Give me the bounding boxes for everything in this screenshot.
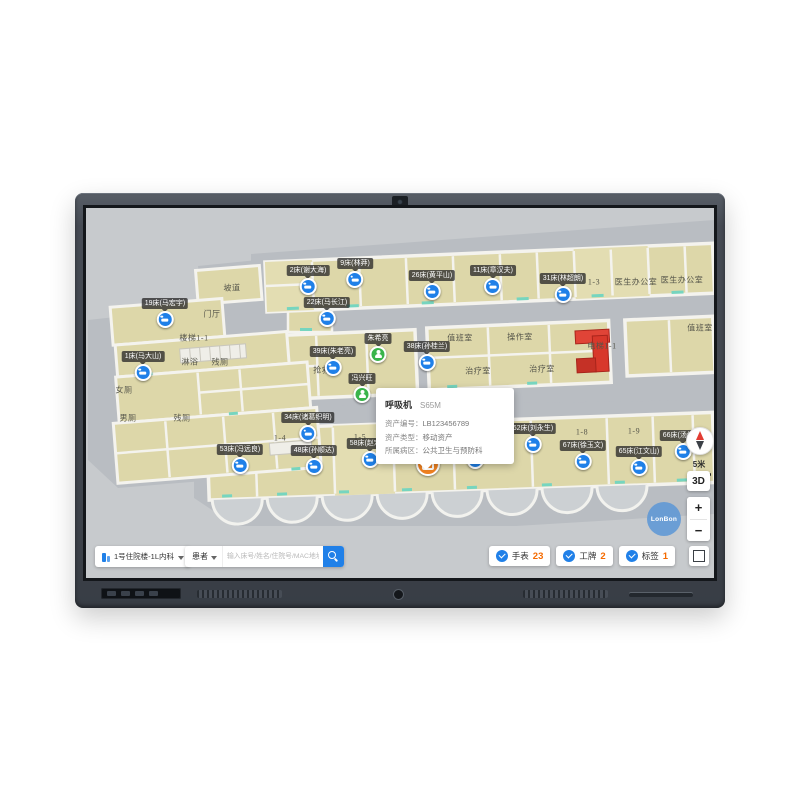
- person-pill-label: 冯兴旺: [349, 373, 376, 384]
- bed-pill-label: 19床(马宏宇): [142, 298, 188, 309]
- tooltip-row-value: LB123456789: [423, 419, 470, 428]
- bed-pill-label: 38床(孙桂兰): [404, 341, 450, 352]
- fullscreen-button[interactable]: [689, 546, 709, 566]
- bed-icon: [524, 436, 541, 453]
- search-button[interactable]: [323, 546, 344, 567]
- building-icon: [101, 552, 111, 562]
- map-scale-label: 5米: [693, 460, 705, 469]
- room-label: 淋浴: [182, 357, 199, 368]
- building-selector[interactable]: 1号住院楼-1L内科: [95, 546, 190, 567]
- bed-icon: [156, 311, 173, 328]
- bed-marker[interactable]: 11床(章汉夫): [470, 265, 516, 295]
- room-label: 操作室: [507, 332, 533, 343]
- bed-icon: [135, 364, 152, 381]
- counter-count: 1: [663, 551, 668, 562]
- bed-pill-label: 9床(林莽): [337, 258, 373, 269]
- room-label: 残厕: [212, 357, 229, 368]
- counter-badge[interactable]: 工牌 2: [556, 546, 612, 566]
- person-icon: [354, 386, 371, 403]
- bed-pill-label: 31床(林超朗): [540, 273, 586, 284]
- watermark-logo: LonBon: [647, 502, 681, 536]
- room-label: 医生办公室: [615, 277, 658, 288]
- room-label: 1-3: [588, 278, 600, 287]
- room-label: 男厕: [120, 413, 137, 424]
- speaker-grille: [523, 590, 608, 598]
- person-marker[interactable]: 冯兴旺: [349, 373, 376, 403]
- person-pill-label: 朱希亮: [365, 333, 392, 344]
- speaker-grille: [197, 590, 282, 598]
- zoom-controls: + −: [687, 497, 710, 541]
- room-label: 坡道: [224, 283, 241, 294]
- mode-3d-button[interactable]: 3D: [687, 471, 710, 491]
- bed-icon: [423, 283, 440, 300]
- room-label: 1-8: [576, 428, 588, 437]
- tooltip-row: 所属病区：公共卫生与预防科: [385, 444, 505, 458]
- room-label: 女厕: [116, 385, 133, 396]
- bed-marker[interactable]: 22床(马长江): [304, 297, 350, 327]
- person-icon: [370, 346, 387, 363]
- counter-label: 标签: [642, 550, 659, 562]
- bottom-toolbar: 1号住院楼-1L内科 患者 手表 23: [86, 546, 714, 568]
- search-category-dropdown[interactable]: 患者: [185, 546, 223, 567]
- chevron-down-icon: [178, 556, 184, 560]
- bed-pill-label: 53床(冯远良): [217, 444, 263, 455]
- tooltip-row-label: 所属病区：: [385, 446, 423, 455]
- counter-watch[interactable]: 手表 23: [489, 546, 551, 566]
- camera-module: [392, 196, 408, 207]
- bed-marker[interactable]: 62床(刘永生): [510, 423, 556, 453]
- bed-icon: [318, 310, 335, 327]
- bed-icon: [299, 425, 316, 442]
- search-group: 患者: [185, 546, 344, 567]
- check-icon: [563, 550, 575, 562]
- room-label: 电梯1-1: [587, 341, 616, 352]
- port-panel: [101, 588, 181, 599]
- bed-marker[interactable]: 48床(孙顺达): [291, 445, 337, 475]
- counter-label: 手表: [512, 550, 529, 562]
- room-label: 治疗室: [465, 366, 491, 377]
- bed-pill-label: 65床(江文山): [616, 446, 662, 457]
- bed-icon: [418, 354, 435, 371]
- bed-pill-label: 48床(孙顺达): [291, 445, 337, 456]
- bed-pill-label: 34床(诸葛织明): [281, 412, 334, 423]
- bed-pill-label: 67床(徐玉文): [560, 440, 606, 451]
- room-label: 治疗室: [529, 364, 555, 375]
- bed-marker[interactable]: 1床(马大山): [122, 351, 165, 381]
- search-input[interactable]: [223, 548, 323, 565]
- bed-icon: [485, 278, 502, 295]
- bed-marker[interactable]: 19床(马宏宇): [142, 298, 188, 328]
- bed-marker[interactable]: 9床(林莽): [337, 258, 373, 288]
- counter-count: 2: [600, 551, 605, 562]
- check-icon: [626, 550, 638, 562]
- counter-badges: 手表 23 工牌 2 标签 1: [489, 546, 709, 566]
- counter-tag[interactable]: 标签 1: [619, 546, 675, 566]
- bed-marker[interactable]: 53床(冯远良): [217, 444, 263, 474]
- tooltip-model: S65M: [420, 401, 441, 410]
- zoom-out-button[interactable]: −: [687, 520, 710, 542]
- bed-icon: [554, 286, 571, 303]
- bed-pill-label: 1床(马大山): [122, 351, 165, 362]
- room-label: 楼梯1-1: [179, 333, 208, 344]
- tooltip-title: 呼吸机: [385, 400, 412, 410]
- bed-pill-label: 26床(黄平山): [409, 270, 455, 281]
- bezel-slot: [629, 593, 693, 597]
- bed-marker[interactable]: 39床(朱老亮): [310, 346, 356, 376]
- room-label: 值班室: [447, 333, 473, 344]
- tooltip-row: 资产类型：移动资产: [385, 431, 505, 445]
- room-label: 值班室: [687, 323, 713, 334]
- display-panel: 坡道 门厅 楼梯1-1 淋浴 残厕 女厕 男厕 残厕 抢救室 值班室 操作室 治…: [75, 193, 725, 608]
- bed-marker[interactable]: 2床(谢大海): [287, 265, 330, 295]
- bed-icon: [324, 359, 341, 376]
- bed-marker[interactable]: 26床(黄平山): [409, 270, 455, 300]
- camera-lens-icon: [398, 199, 403, 204]
- tooltip-header: 呼吸机S65M: [385, 395, 505, 413]
- bed-marker[interactable]: 65床(江文山): [616, 446, 662, 476]
- tooltip-row-label: 资产类型：: [385, 433, 423, 442]
- counter-label: 工牌: [579, 550, 596, 562]
- tooltip-row: 资产编号：LB123456789: [385, 417, 505, 431]
- room-label: 1-9: [628, 427, 640, 436]
- bed-icon: [231, 457, 248, 474]
- tooltip-row-value: 公共卫生与预防科: [423, 446, 483, 455]
- bed-pill-label: 39床(朱老亮): [310, 346, 356, 357]
- bed-icon: [574, 453, 591, 470]
- room-label: 门厅: [204, 309, 221, 320]
- bed-icon: [300, 278, 317, 295]
- page: 坡道 门厅 楼梯1-1 淋浴 残厕 女厕 男厕 残厕 抢救室 值班室 操作室 治…: [0, 0, 800, 800]
- tooltip-row-value: 移动资产: [423, 433, 453, 442]
- bed-icon: [630, 459, 647, 476]
- room-label: 残厕: [174, 413, 191, 424]
- chevron-down-icon: [211, 556, 217, 560]
- check-icon: [496, 550, 508, 562]
- bed-marker[interactable]: 31床(林超朗): [540, 273, 586, 303]
- screen: 坡道 门厅 楼梯1-1 淋浴 残厕 女厕 男厕 残厕 抢救室 值班室 操作室 治…: [86, 208, 714, 578]
- bed-marker[interactable]: 34床(诸葛织明): [281, 412, 334, 442]
- compass-icon[interactable]: [686, 427, 714, 455]
- counter-count: 23: [533, 551, 544, 562]
- search-icon: [327, 550, 339, 562]
- bed-pill-label: 62床(刘永生): [510, 423, 556, 434]
- building-selector-label: 1号住院楼-1L内科: [114, 551, 174, 562]
- bed-marker[interactable]: 67床(徐玉文): [560, 440, 606, 470]
- room-label: 医生办公室: [661, 275, 704, 286]
- person-marker[interactable]: 朱希亮: [365, 333, 392, 363]
- bed-icon: [305, 458, 322, 475]
- tooltip-row-label: 资产编号：: [385, 419, 423, 428]
- bed-pill-label: 2床(谢大海): [287, 265, 330, 276]
- bed-pill-label: 22床(马长江): [304, 297, 350, 308]
- search-category-label: 患者: [192, 551, 208, 562]
- bed-icon: [347, 271, 364, 288]
- power-button[interactable]: [393, 589, 404, 600]
- bed-marker[interactable]: 38床(孙桂兰): [404, 341, 450, 371]
- asset-tooltip: 呼吸机S65M 资产编号：LB123456789 资产类型：移动资产 所属病区：…: [376, 388, 514, 464]
- bed-pill-label: 11床(章汉夫): [470, 265, 516, 276]
- zoom-in-button[interactable]: +: [687, 497, 710, 519]
